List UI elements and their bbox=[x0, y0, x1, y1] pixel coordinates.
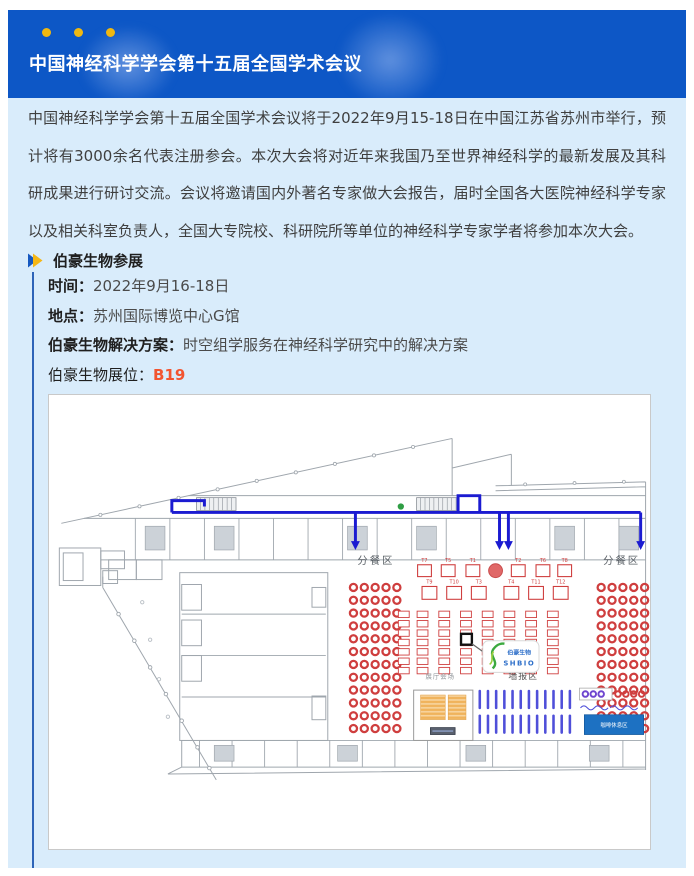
detail-row-solution: 伯豪生物解决方案：时空组学服务在神经科学研究中的解决方案 bbox=[48, 331, 658, 361]
detail-row-place: 地点：苏州国际博览中心G馆 bbox=[48, 302, 658, 332]
section-heading: 伯豪生物参展 bbox=[28, 250, 143, 271]
route-start-dot bbox=[398, 503, 404, 509]
dining-tables-left bbox=[350, 584, 401, 732]
detail-row-booth: 伯豪生物展位：B19 bbox=[48, 361, 658, 391]
highlight-table-circle bbox=[489, 564, 503, 578]
poster-boards-row1 bbox=[480, 691, 570, 708]
numbered-tables: T7 T5 T1 T2 T6 T8 T9 T10 T3 T4 T11 T12 bbox=[418, 558, 572, 600]
table-label: T5 bbox=[444, 558, 451, 564]
table-label: T2 bbox=[514, 558, 521, 564]
detail-list: 时间：2022年9月16-18日 地点：苏州国际博览中心G馆 伯豪生物解决方案：… bbox=[48, 272, 658, 390]
detail-label: 时间： bbox=[48, 277, 93, 295]
seating-block bbox=[421, 695, 446, 720]
arrow-icon bbox=[28, 253, 44, 268]
header-banner: 中国神经科学学会第十五届全国学术会议 bbox=[8, 10, 686, 98]
table-label: T1 bbox=[469, 558, 476, 564]
dining-area-label-right: 分餐区 bbox=[603, 554, 640, 567]
page-title: 中国神经科学学会第十五届全国学术会议 bbox=[29, 50, 362, 76]
floor-plan-svg: T7 T5 T1 T2 T6 T8 T9 T10 T3 T4 T11 T12 bbox=[49, 395, 650, 849]
decor-dots bbox=[42, 28, 115, 37]
table-label: T3 bbox=[475, 580, 482, 586]
floor-plan-map: T7 T5 T1 T2 T6 T8 T9 T10 T3 T4 T11 T12 bbox=[48, 394, 651, 850]
bohao-booth-b19 bbox=[461, 634, 472, 645]
logo-sub-text: SHBIO bbox=[503, 659, 535, 667]
dining-area-label-left: 分餐区 bbox=[357, 554, 394, 567]
decor-dot bbox=[74, 28, 83, 37]
table-label: T4 bbox=[507, 580, 514, 586]
detail-value: 时空组学服务在神经科学研究中的解决方案 bbox=[183, 336, 468, 354]
detail-label: 伯豪生物解决方案： bbox=[48, 336, 183, 354]
table-label: T10 bbox=[448, 580, 458, 586]
hall-venue-label: 展厅会场 bbox=[426, 671, 456, 680]
coffee-area-label: 咖啡休息区 bbox=[600, 721, 628, 729]
booth-number: B19 bbox=[153, 366, 185, 384]
detail-label: 伯豪生物展位： bbox=[48, 366, 153, 384]
logo-name-text: 伯豪生物 bbox=[507, 649, 531, 657]
decor-dot bbox=[42, 28, 51, 37]
stage-area bbox=[414, 690, 473, 740]
intro-paragraph: 中国神经科学学会第十五届全国学术会议将于2022年9月15-18日在中国江苏省苏… bbox=[28, 100, 666, 250]
table-label: T8 bbox=[561, 558, 568, 564]
detail-row-time: 时间：2022年9月16-18日 bbox=[48, 272, 658, 302]
decor-dot bbox=[106, 28, 115, 37]
table-label: T12 bbox=[555, 580, 565, 586]
table-label: T11 bbox=[530, 580, 540, 586]
table-label: T9 bbox=[425, 580, 432, 586]
content-card: 中国神经科学学会第十五届全国学术会议 中国神经科学学会第十五届全国学术会议将于2… bbox=[8, 10, 686, 868]
route-arrowheads bbox=[351, 541, 645, 550]
table-label: T6 bbox=[539, 558, 546, 564]
table-label: T7 bbox=[420, 558, 427, 564]
seating-block bbox=[448, 695, 466, 720]
detail-value: 2022年9月16-18日 bbox=[93, 277, 229, 295]
poster-boards-row2 bbox=[480, 716, 570, 733]
detail-value: 苏州国际博览中心G馆 bbox=[93, 307, 240, 325]
section-title: 伯豪生物参展 bbox=[53, 250, 143, 271]
section-rule bbox=[32, 272, 34, 868]
detail-label: 地点： bbox=[48, 307, 93, 325]
